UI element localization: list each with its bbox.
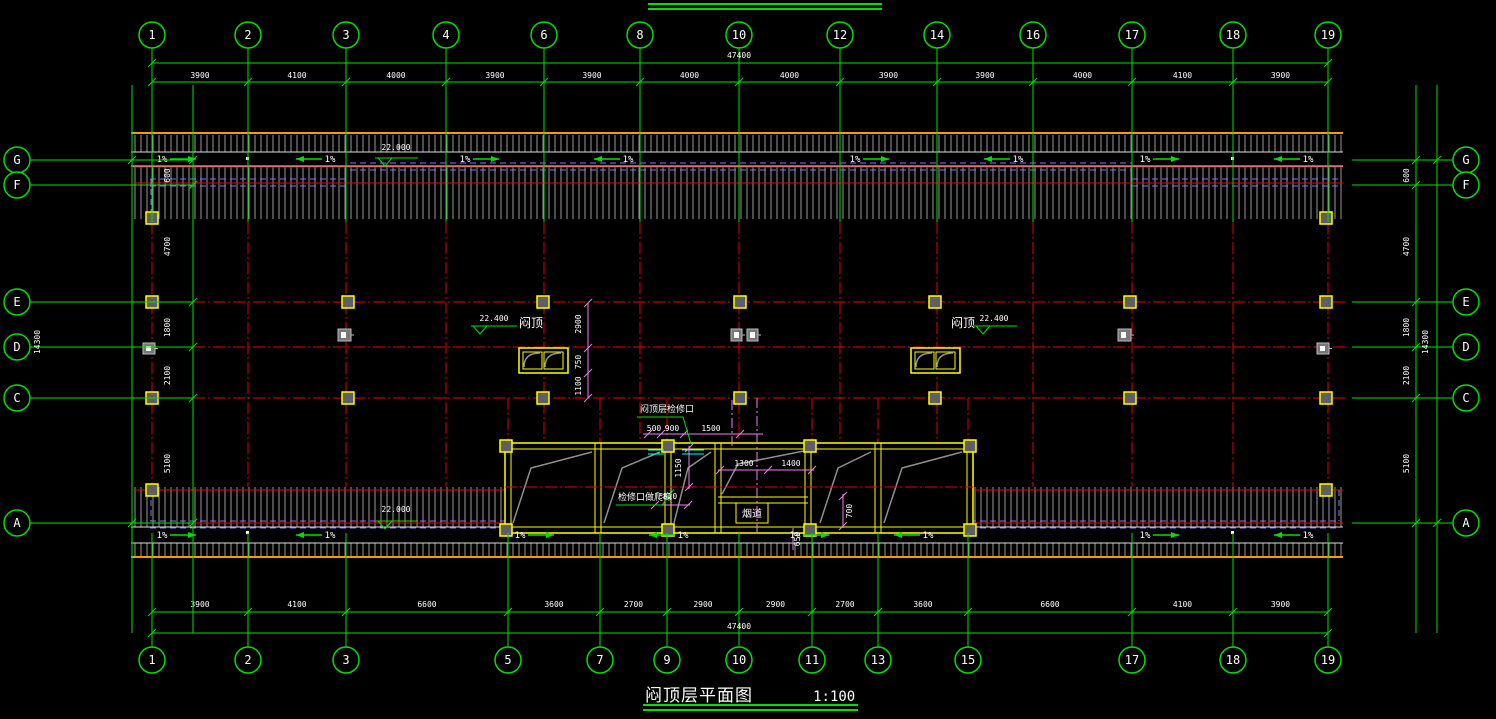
axis-bubble-label: 1 — [148, 653, 155, 667]
axis-bubble-label: 2 — [244, 28, 251, 42]
dim-value: 3900 — [879, 71, 898, 80]
roof-hatch-band — [131, 135, 1343, 152]
column-marker — [342, 296, 354, 308]
slope-label: 1% — [515, 531, 526, 541]
slope-label: 1% — [850, 155, 861, 165]
dim-value: 4000 — [680, 71, 699, 80]
dim-value: 4000 — [780, 71, 799, 80]
vent-symbol-core — [734, 332, 739, 338]
dim-value: 4700 — [1402, 237, 1411, 256]
elevation-value: 22.000 — [382, 505, 411, 514]
axis-bubble-label: 7 — [596, 653, 603, 667]
column-marker — [342, 392, 354, 404]
column-marker — [1124, 296, 1136, 308]
column-marker — [804, 440, 816, 452]
slope-arrowhead — [296, 156, 304, 162]
axis-bubble-label: 10 — [732, 653, 746, 667]
detail-dim-text: 700 — [845, 504, 854, 519]
column-marker — [1320, 212, 1332, 224]
cad-canvas[interactable]: 烟道50090015001150820130014007006502900750… — [0, 0, 1496, 719]
title-underline — [643, 709, 858, 711]
detail-dim-text: 1150 — [674, 458, 683, 477]
column-marker — [1124, 392, 1136, 404]
slope-label: 1% — [325, 531, 336, 541]
dim-value: 5100 — [1402, 454, 1411, 473]
column-marker — [1320, 392, 1332, 404]
dim-value: 600 — [163, 168, 172, 183]
dim-value: 3900 — [1271, 71, 1290, 80]
column-marker — [537, 296, 549, 308]
dim-value: 6600 — [1040, 600, 1059, 609]
duct-label: 烟道 — [742, 507, 762, 520]
sheet-mark-line — [648, 3, 882, 5]
slope-label: 1% — [157, 531, 168, 541]
axis-bubble-label: A — [13, 516, 21, 530]
axis-bubble-label: 5 — [504, 653, 511, 667]
dim-value: 2900 — [693, 600, 712, 609]
axis-bubble-label: 8 — [636, 28, 643, 42]
slope-label: 1% — [1140, 531, 1151, 541]
column-marker — [804, 524, 816, 536]
roof-hatch-band — [131, 543, 1343, 556]
elevation-triangle — [473, 326, 487, 334]
dim-value: 5100 — [163, 454, 172, 473]
dim-value: 2700 — [624, 600, 643, 609]
slope-label: 1% — [923, 531, 934, 541]
slope-arrowhead — [594, 156, 602, 162]
slope-arrowhead — [881, 156, 889, 162]
drawing-title-row: 闷顶层平面图 1:100 — [645, 681, 905, 706]
axis-bubble-label: 9 — [663, 653, 670, 667]
vent-symbol-core — [750, 332, 755, 338]
overall-dim-value: 14300 — [33, 330, 42, 354]
axis-bubble-label: D — [13, 340, 20, 354]
elevation-value: 22.000 — [382, 143, 411, 152]
column-marker — [662, 524, 674, 536]
dim-value: 1800 — [1402, 318, 1411, 337]
slope-arrowhead — [188, 532, 196, 538]
vent-symbol-core — [1320, 346, 1325, 351]
column-marker — [1320, 484, 1332, 496]
axis-bubble-label: 13 — [871, 653, 885, 667]
slope-label: 1% — [790, 531, 801, 541]
axis-bubble-label: A — [1462, 516, 1470, 530]
dim-value: 3900 — [485, 71, 504, 80]
dim-value: 600 — [1402, 168, 1411, 183]
elevation-value: 22.400 — [980, 314, 1009, 323]
vent-symbol-core — [341, 332, 346, 338]
detail-dim-text: 2900 — [574, 314, 583, 333]
slope-arrowhead — [1274, 156, 1282, 162]
overall-dim-value: 47400 — [727, 622, 751, 631]
column-marker — [734, 296, 746, 308]
axis-bubble-label: 16 — [1026, 28, 1040, 42]
detail-dim-text: 750 — [574, 355, 583, 370]
axis-bubble-label: C — [1462, 391, 1469, 405]
column-marker — [500, 440, 512, 452]
axis-bubble-label: C — [13, 391, 20, 405]
axis-bubble-label: G — [13, 153, 20, 167]
axis-bubble-label: F — [13, 178, 20, 192]
slope-label: 1% — [1303, 155, 1314, 165]
dim-value: 4100 — [287, 71, 306, 80]
detail-dim-text: 900 — [665, 424, 680, 433]
slope-label: 1% — [460, 155, 471, 165]
axis-bubble-label: 10 — [732, 28, 746, 42]
axis-bubble-label: E — [13, 295, 20, 309]
detail-dim-text: 1400 — [781, 459, 800, 468]
axis-bubble-label: E — [1462, 295, 1469, 309]
axis-bubble-label: 3 — [342, 653, 349, 667]
sheet-mark-line — [648, 8, 882, 10]
axis-bubble-label: 19 — [1321, 653, 1335, 667]
slope-arrowhead — [1171, 532, 1179, 538]
slope-label: 1% — [623, 155, 634, 165]
cad-drawing-stage: 烟道50090015001150820130014007006502900750… — [0, 0, 1496, 719]
dim-value: 3900 — [582, 71, 601, 80]
title-underline — [643, 704, 858, 706]
detail-dim-text: 1500 — [701, 424, 720, 433]
elevation-value: 22.400 — [480, 314, 509, 323]
dim-value: 4100 — [1173, 600, 1192, 609]
vent-symbol-core — [1121, 332, 1126, 338]
dim-value: 3900 — [1271, 600, 1290, 609]
axis-bubble-label: 18 — [1226, 28, 1240, 42]
column-marker — [929, 392, 941, 404]
drawing-title: 闷顶层平面图 — [645, 686, 753, 706]
slope-label: 1% — [325, 155, 336, 165]
axis-bubble-label: 18 — [1226, 653, 1240, 667]
slope-arrowhead — [1274, 532, 1282, 538]
axis-bubble-label: 19 — [1321, 28, 1335, 42]
axis-bubble-label: 2 — [244, 653, 251, 667]
dim-value: 2100 — [1402, 366, 1411, 385]
dim-value: 3600 — [913, 600, 932, 609]
leader-text: 闷顶层检修口 — [640, 403, 694, 415]
slope-arrowhead — [984, 156, 992, 162]
attic-label: 闷顶 — [519, 315, 543, 330]
dim-value: 4000 — [1073, 71, 1092, 80]
detail-dim-text: 1300 — [734, 459, 753, 468]
axis-bubble-label: 11 — [805, 653, 819, 667]
axis-bubble-label: G — [1462, 153, 1469, 167]
axis-bubble-label: D — [1462, 340, 1469, 354]
column-marker — [734, 392, 746, 404]
slope-arrowhead — [296, 532, 304, 538]
axis-bubble-label: 3 — [342, 28, 349, 42]
column-marker — [964, 440, 976, 452]
slope-label: 1% — [678, 531, 689, 541]
elevation-triangle — [378, 158, 392, 166]
dim-value: 2100 — [163, 366, 172, 385]
slope-arrowhead — [491, 156, 499, 162]
column-marker — [537, 392, 549, 404]
dim-value: 1800 — [163, 318, 172, 337]
dim-value: 4100 — [287, 600, 306, 609]
column-marker — [146, 484, 158, 496]
elevation-triangle — [976, 326, 990, 334]
dim-value: 2700 — [835, 600, 854, 609]
slope-label: 1% — [1013, 155, 1024, 165]
column-marker — [500, 524, 512, 536]
dim-value: 2900 — [766, 600, 785, 609]
column-marker — [929, 296, 941, 308]
slope-label: 1% — [1140, 155, 1151, 165]
axis-bubble-label: 17 — [1125, 28, 1139, 42]
column-marker — [1320, 296, 1332, 308]
axis-bubble-label: 1 — [148, 28, 155, 42]
dim-value: 4700 — [163, 237, 172, 256]
dim-value: 3900 — [975, 71, 994, 80]
dim-value: 6600 — [417, 600, 436, 609]
axis-bubble-label: 17 — [1125, 653, 1139, 667]
axis-bubble-label: 4 — [442, 28, 449, 42]
slope-label: 1% — [1303, 531, 1314, 541]
dim-value: 3900 — [190, 71, 209, 80]
detail-dim-text: 1100 — [574, 376, 583, 395]
leader-text: 检修口做爬梯 — [618, 491, 672, 503]
drawing-scale: 1:100 — [813, 689, 855, 705]
column-marker — [964, 524, 976, 536]
dim-value: 4100 — [1173, 71, 1192, 80]
overall-dim-value: 14300 — [1421, 330, 1430, 354]
slope-arrowhead — [1171, 156, 1179, 162]
dim-value: 3600 — [544, 600, 563, 609]
attic-label: 闷顶 — [951, 315, 975, 330]
roof-hatch-band — [131, 166, 1343, 219]
dim-value: 4000 — [386, 71, 405, 80]
axis-bubble-label: F — [1462, 178, 1469, 192]
detail-dim-text: 500 — [647, 424, 662, 433]
axis-bubble-label: 6 — [540, 28, 547, 42]
axis-bubble-label: 12 — [833, 28, 847, 42]
overall-dim-value: 47400 — [727, 51, 751, 60]
axis-bubble-label: 15 — [961, 653, 975, 667]
axis-bubble-label: 14 — [930, 28, 944, 42]
